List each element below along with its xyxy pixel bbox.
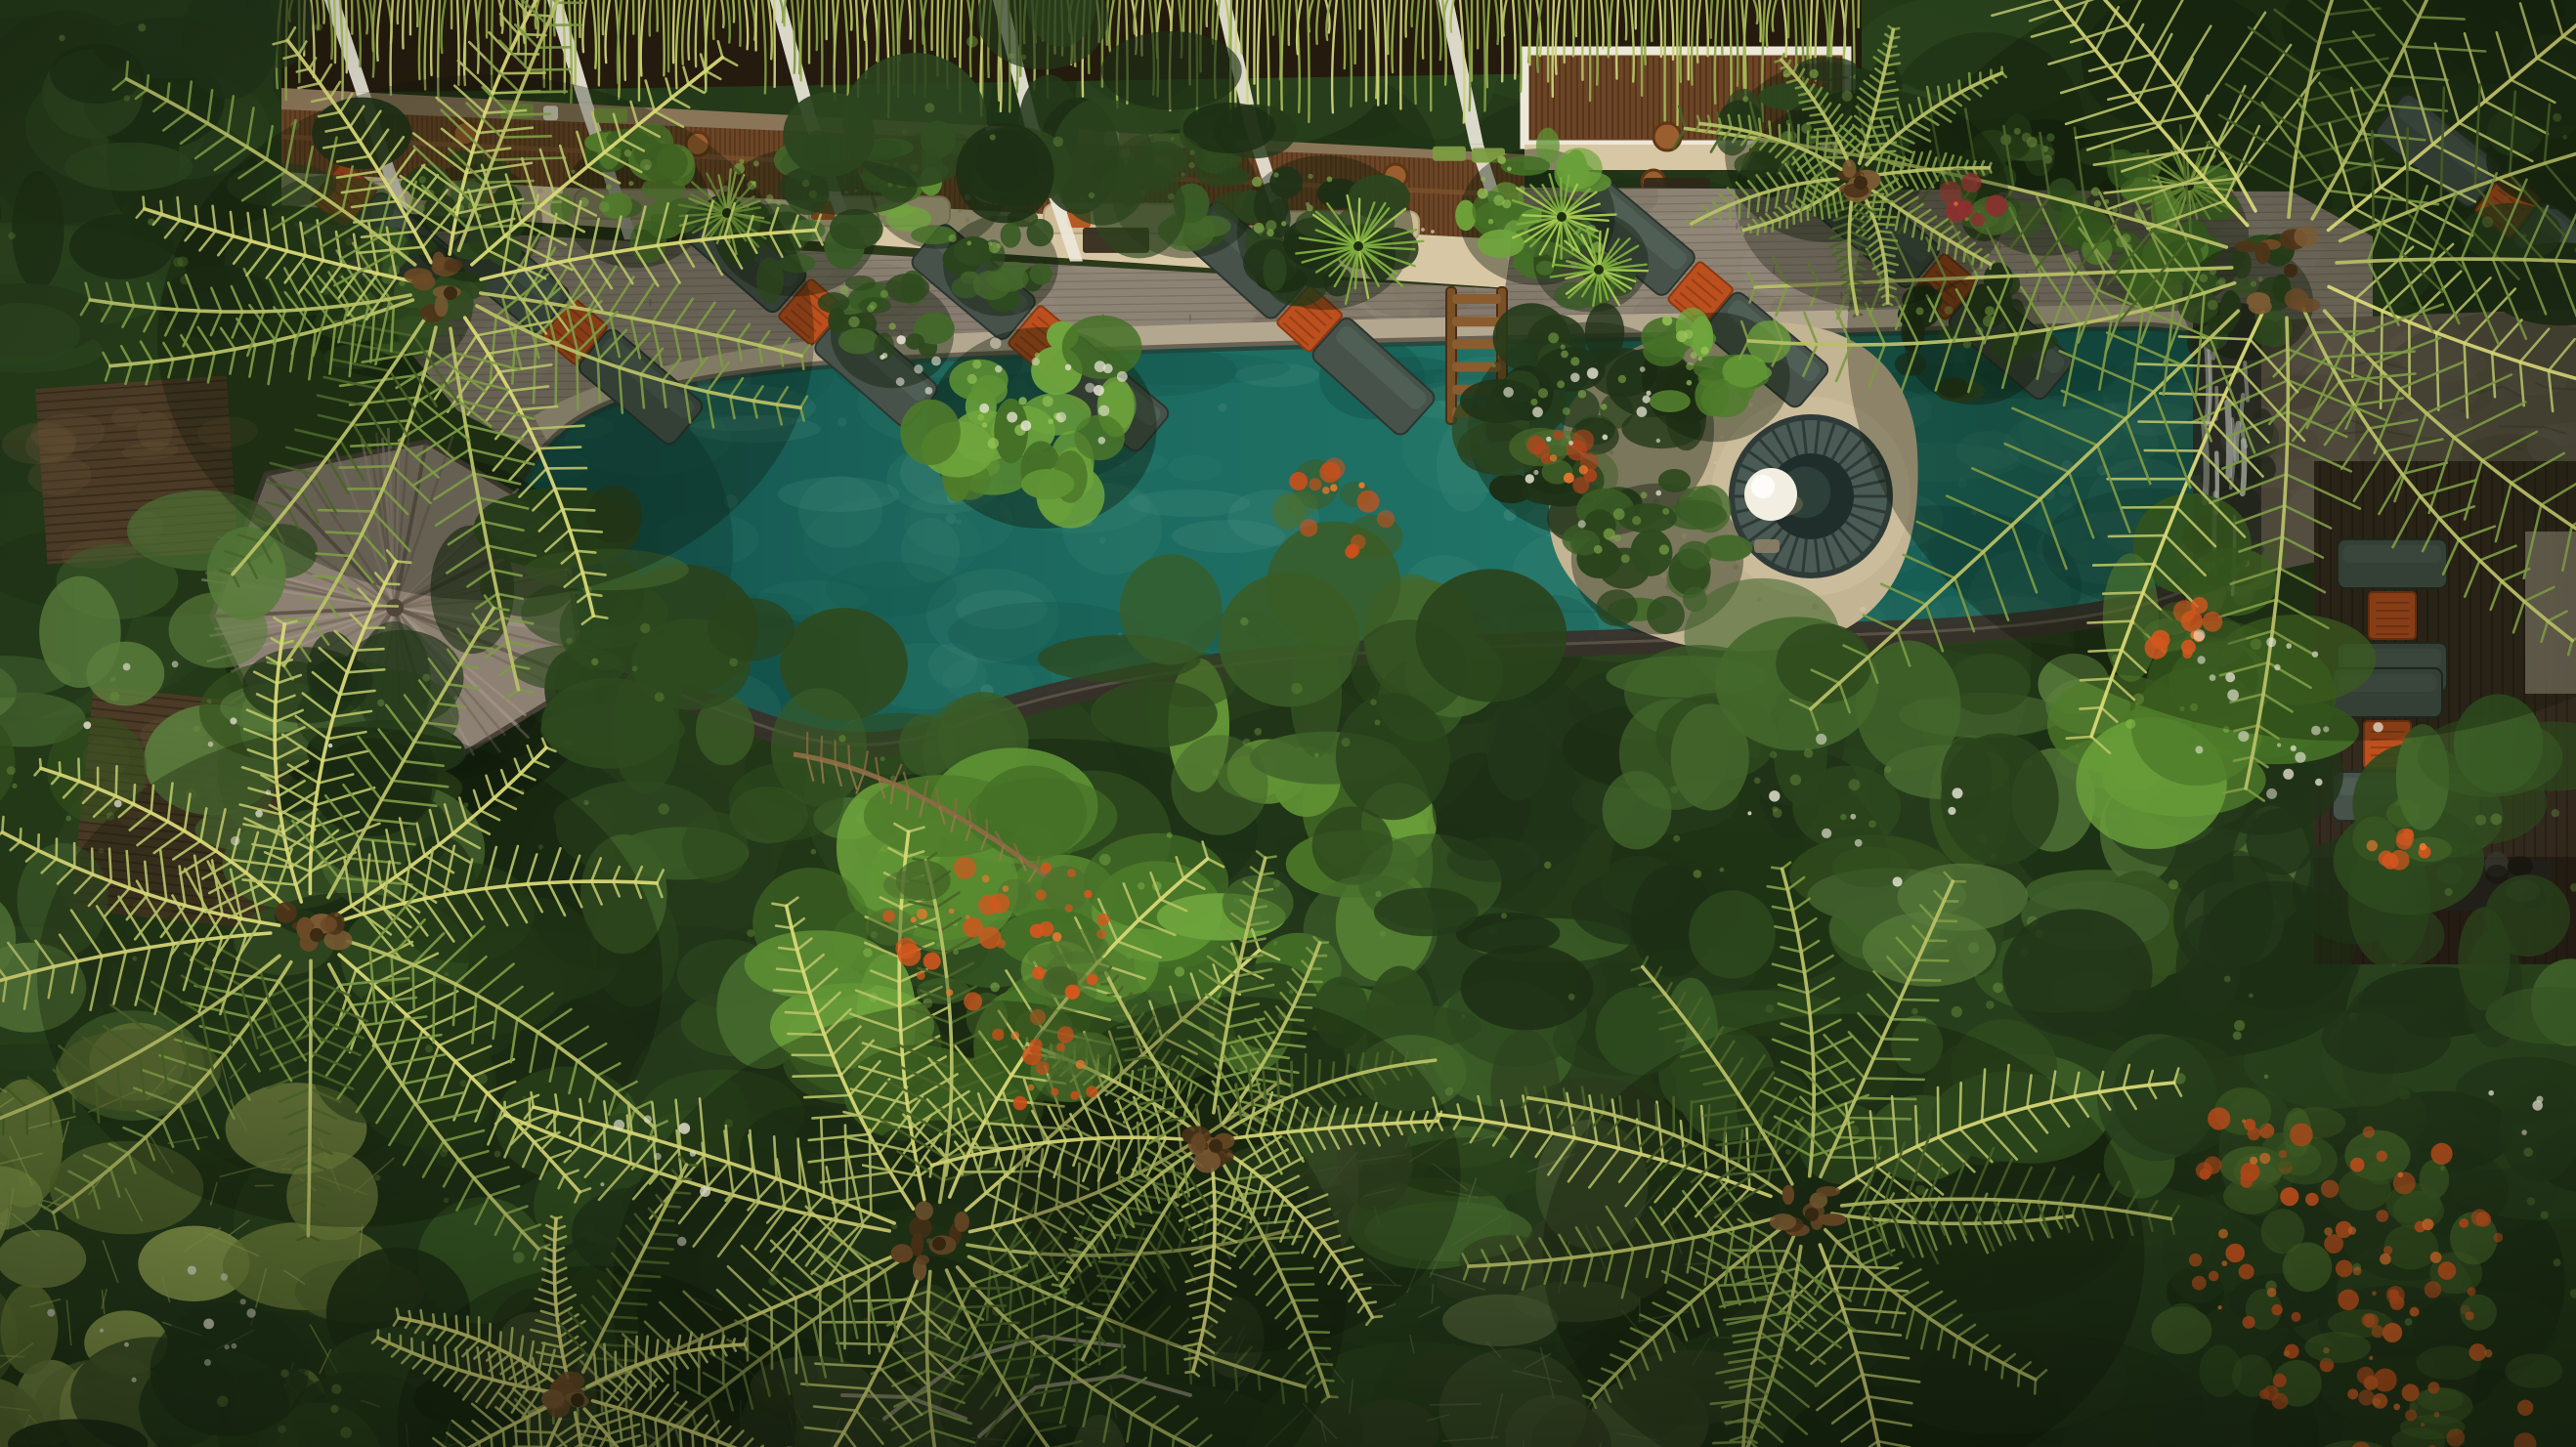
aerial-resort-photo bbox=[0, 0, 2576, 1447]
photo-canvas bbox=[0, 0, 2576, 1447]
